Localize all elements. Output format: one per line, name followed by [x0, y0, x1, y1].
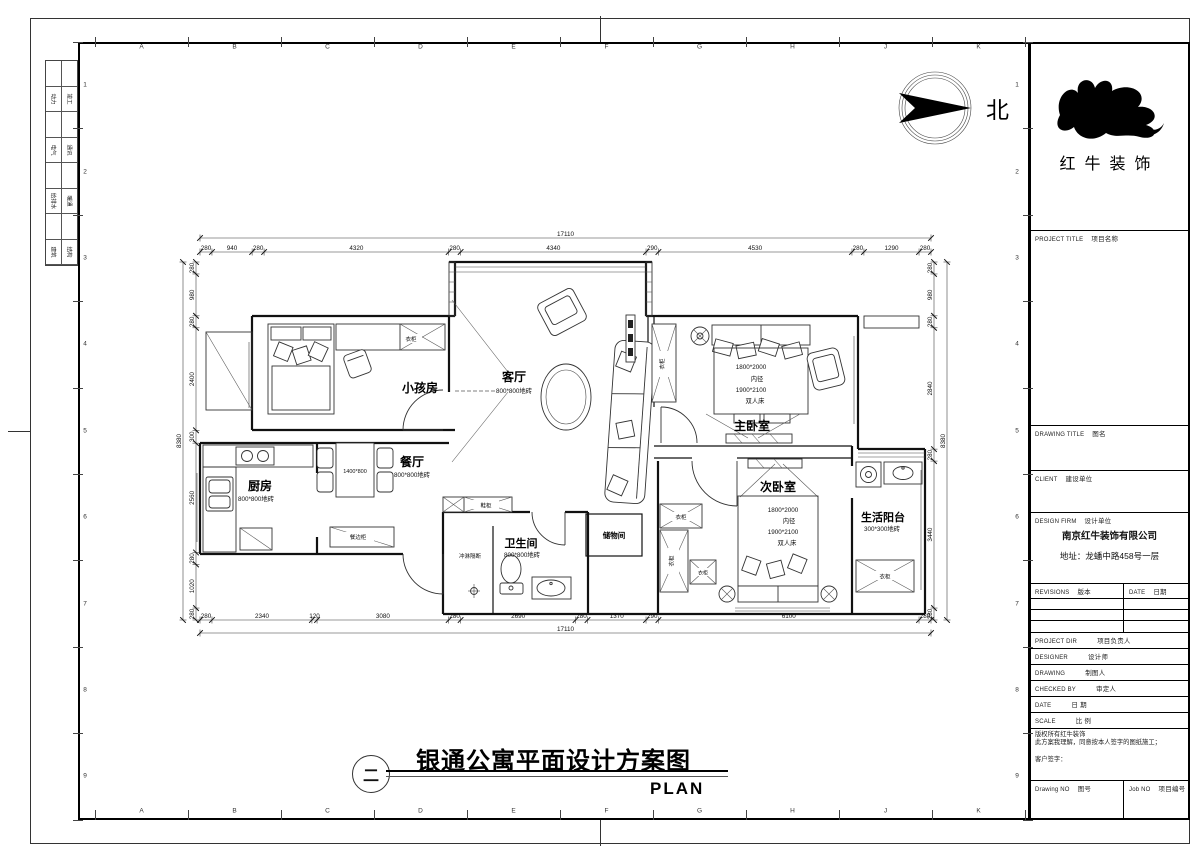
- stamp-cell: [62, 163, 77, 188]
- stamp-cell: 电气: [46, 138, 62, 163]
- stamp-cell: 结构: [62, 240, 77, 265]
- sideboard-label: 餐边柜: [350, 533, 367, 541]
- balcony-sink: [884, 462, 922, 484]
- room-label-master: 主卧室: [734, 418, 770, 433]
- titleblock-row-date: DATE日 期: [1031, 696, 1188, 712]
- north-arrow: 北: [899, 72, 1009, 144]
- dim-label: 3080: [376, 613, 391, 620]
- sideboard: 餐边柜: [330, 527, 394, 547]
- dim-label: 280: [449, 245, 460, 252]
- stamp-label: 竣工: [65, 93, 73, 104]
- ceiling-fan: [691, 327, 709, 345]
- tv-cabinet: [626, 315, 635, 362]
- washing-machine: [856, 462, 881, 487]
- revisions-divider: [1123, 583, 1124, 632]
- brand-name: 红牛装饰: [1031, 150, 1188, 174]
- stamp-cell: [62, 61, 77, 86]
- toilet: [500, 555, 523, 594]
- dim-label: 3440: [927, 527, 934, 542]
- room-label-kids: 小孩房: [402, 380, 438, 395]
- room-label-living: 客厅: [501, 369, 526, 384]
- firm-address: 地址：龙蟠中路458号一层: [1031, 550, 1188, 562]
- svg-text:内径: 内径: [751, 374, 764, 383]
- drawing-title-row: DRAWING TITLE图名: [1031, 425, 1188, 470]
- dim-label: 280: [853, 245, 864, 252]
- project-title-row: PROJECT TITLE项目名称: [1031, 230, 1188, 425]
- dim-label: 280: [201, 613, 212, 620]
- dining-table: 1400*800: [317, 443, 393, 497]
- sheet-number-circle: 二: [352, 755, 390, 793]
- stamp-cell: [46, 214, 62, 239]
- construction-note: 此方案我理解，同意按本人签字的图纸施工；: [1035, 739, 1185, 747]
- room-floor-bath: 800*800地砖: [504, 550, 541, 559]
- titleblock-row-drawing: DRAWING制图人: [1031, 664, 1188, 680]
- stamp-cell: [62, 214, 77, 239]
- stamp-label: 通讯: [65, 144, 73, 155]
- titleblock-row-project-dir: PROJECT DIR项目负责人: [1031, 632, 1188, 648]
- master-bed: [712, 325, 810, 423]
- dim-label: 17110: [557, 231, 575, 238]
- wardrobe-label: 衣柜: [405, 335, 417, 343]
- center-mark-top: [600, 16, 601, 42]
- revisions-table: REVISIONS版本 DATE日期: [1031, 583, 1188, 632]
- wardrobe-label: 衣柜: [675, 513, 687, 521]
- balcony-wardrobe: 衣柜: [856, 560, 914, 592]
- stamp-cell: 给排水: [46, 189, 62, 214]
- second-tv: [748, 459, 802, 468]
- kids-armchair: [343, 349, 373, 379]
- top-right-ledge: [864, 316, 919, 328]
- room-label-balcony: 生活阳台: [861, 510, 905, 524]
- dim-label: 2840: [927, 381, 934, 396]
- washbasin: [532, 577, 571, 599]
- client-signature-label: 客户签字：: [1035, 756, 1185, 764]
- dim-label: 17110: [557, 626, 575, 633]
- second-wardrobe-small: 衣柜: [690, 560, 716, 584]
- dim-label: 4320: [349, 245, 364, 252]
- drawing-no-divider: [1123, 780, 1124, 818]
- dim-label: 1370: [610, 613, 625, 620]
- stamp-cell: 竣工: [62, 87, 77, 112]
- dim-label: 300: [189, 431, 196, 442]
- client-row: CLIENT建设单位: [1031, 470, 1188, 512]
- wardrobe-label: 衣柜: [658, 358, 666, 370]
- dim-label: 280: [189, 553, 196, 564]
- dim-label: 280: [189, 262, 196, 273]
- dim-label: 980: [927, 289, 934, 300]
- master-armchair: [806, 347, 846, 392]
- kids-wardrobe: 衣柜: [336, 324, 445, 350]
- room-floor-balcony: 300*300地砖: [864, 524, 901, 533]
- second-wardrobe-top: 衣柜: [660, 504, 702, 528]
- dim-label: 2560: [189, 490, 196, 505]
- dim-label: 2400: [189, 372, 196, 387]
- discipline-stamp-boxes: 动力竣工电气通讯给排水暖通建筑结构: [45, 60, 78, 266]
- dim-label: 1290: [884, 245, 899, 252]
- copyright-note: 版权所有红牛装饰: [1035, 731, 1185, 739]
- stamp-label: 电气: [49, 144, 57, 155]
- title-underline-thick: [386, 770, 728, 772]
- dim-label: 280: [920, 245, 931, 252]
- svg-text:双人床: 双人床: [746, 396, 766, 405]
- dim-label: 280: [927, 316, 934, 327]
- drawing-sheet: 动力竣工电气通讯给排水暖通建筑结构 AABBCCDDEEFFGGHHJJKK11…: [0, 0, 1200, 860]
- dim-label: 2690: [511, 613, 526, 620]
- stamp-cell: [46, 163, 62, 188]
- shower-screen-label: 冲淋隔断: [459, 552, 482, 560]
- svg-text:双人床: 双人床: [778, 538, 798, 547]
- stamp-label: 结构: [65, 246, 73, 257]
- dim-label: 4340: [546, 245, 561, 252]
- stamp-row: 动力竣工: [46, 87, 77, 113]
- firm-name: 南京红牛装饰有限公司: [1031, 528, 1188, 542]
- second-bed-spec: 1800*2000: [768, 507, 799, 514]
- stamp-label: 建筑: [49, 246, 57, 257]
- project-title-en: PROJECT TITLE: [1035, 237, 1083, 243]
- wardrobe-label: 衣柜: [668, 555, 676, 567]
- room-label-kitchen: 厨房: [248, 478, 272, 493]
- stamp-label: 给排水: [50, 192, 58, 209]
- stamp-label: 暖通: [65, 195, 73, 206]
- titleblock-row-scale: SCALE比 例: [1031, 712, 1188, 728]
- dim-label: 120: [309, 613, 320, 620]
- dim-label: 280: [253, 245, 264, 252]
- north-label: 北: [986, 97, 1009, 123]
- stamp-cell: [62, 112, 77, 137]
- dim-label: 280: [927, 608, 934, 619]
- shoe-cabinet: 鞋柜: [443, 497, 512, 512]
- drawing-no-row: Drawing NO图号 Job NO项目编号: [1031, 780, 1188, 820]
- dim-label: 4530: [748, 245, 763, 252]
- stamp-row: [46, 112, 77, 138]
- master-wardrobe: 衣柜: [652, 324, 676, 402]
- stamp-cell: 通讯: [62, 138, 77, 163]
- floor-plan: 北: [78, 42, 1028, 820]
- second-wardrobe-tall: 衣柜: [660, 530, 688, 592]
- stamp-row: [46, 214, 77, 240]
- svg-text:1900*2100: 1900*2100: [768, 529, 799, 536]
- stamp-row: 电气通讯: [46, 138, 77, 164]
- stamp-cell: 暖通: [62, 189, 77, 214]
- design-firm-row: DESIGN FIRM设计单位: [1031, 512, 1188, 583]
- dim-label: 2340: [255, 613, 270, 620]
- stamp-cell: [46, 112, 62, 137]
- room-floor-dining: 800*800地砖: [394, 470, 431, 479]
- dim-label: 8380: [176, 434, 183, 449]
- master-bed-spec: 1800*2000: [736, 364, 767, 371]
- shoe-cabinet-label: 鞋柜: [480, 502, 492, 510]
- room-label-storage: 储物间: [603, 530, 626, 540]
- dining-table-size: 1400*800: [343, 469, 367, 475]
- stamp-row: 建筑结构: [46, 240, 77, 266]
- master-tv: [726, 434, 792, 443]
- bull-logo-icon: [1057, 80, 1164, 139]
- dim-label: 940: [227, 245, 238, 252]
- stamp-row: 给排水暖通: [46, 189, 77, 215]
- room-floor-kitchen: 800*800地砖: [238, 494, 275, 503]
- dim-label: 280: [201, 245, 212, 252]
- dim-label: 8380: [940, 434, 947, 449]
- titleblock-row-checked-by: CHECKED BY审定人: [1031, 680, 1188, 696]
- center-mark-bottom: [600, 820, 601, 846]
- dim-label: 280: [189, 316, 196, 327]
- titleblock-row-designer: DESIGNER设计师: [1031, 648, 1188, 664]
- dim-label: 980: [189, 289, 196, 300]
- north-arrow-icon: [899, 93, 971, 123]
- company-logo: [1048, 75, 1168, 145]
- dim-label: 280: [189, 608, 196, 619]
- dim-label: 280: [449, 613, 460, 620]
- sofa: [604, 340, 655, 504]
- dim-label: 280: [927, 449, 934, 460]
- dim-label: 1020: [189, 579, 196, 594]
- room-floor-living: 800*800地砖: [496, 386, 533, 395]
- floor-drain: [468, 584, 480, 598]
- stamp-cell: 建筑: [46, 240, 62, 265]
- stamp-cell: [46, 61, 62, 86]
- room-label-second: 次卧室: [760, 479, 796, 494]
- room-label-bath: 卫生间: [505, 536, 538, 550]
- coffee-table: [541, 364, 591, 430]
- dim-label: 280: [576, 613, 587, 620]
- kids-bed: [268, 324, 334, 414]
- title-underline-thin: [386, 776, 728, 777]
- svg-text:1900*2100: 1900*2100: [736, 387, 767, 394]
- dim-label: 290: [647, 613, 658, 620]
- room-label-dining: 餐厅: [400, 454, 424, 469]
- dim-label: 280: [927, 262, 934, 273]
- living-armchair: [536, 287, 588, 338]
- project-title-zh: 项目名称: [1091, 236, 1118, 243]
- svg-text:内径: 内径: [783, 516, 796, 525]
- stamp-row: [46, 163, 77, 189]
- wardrobe-label: 衣柜: [698, 570, 708, 577]
- wardrobe-label: 衣柜: [879, 573, 891, 581]
- center-mark-left: [8, 431, 30, 432]
- stamp-label: 动力: [49, 93, 57, 104]
- stamp-row: [46, 61, 77, 87]
- dim-label: 290: [647, 245, 658, 252]
- stamp-cell: 动力: [46, 87, 62, 112]
- dim-label: 6100: [782, 613, 797, 620]
- sheet-subtitle: PLAN: [650, 779, 704, 799]
